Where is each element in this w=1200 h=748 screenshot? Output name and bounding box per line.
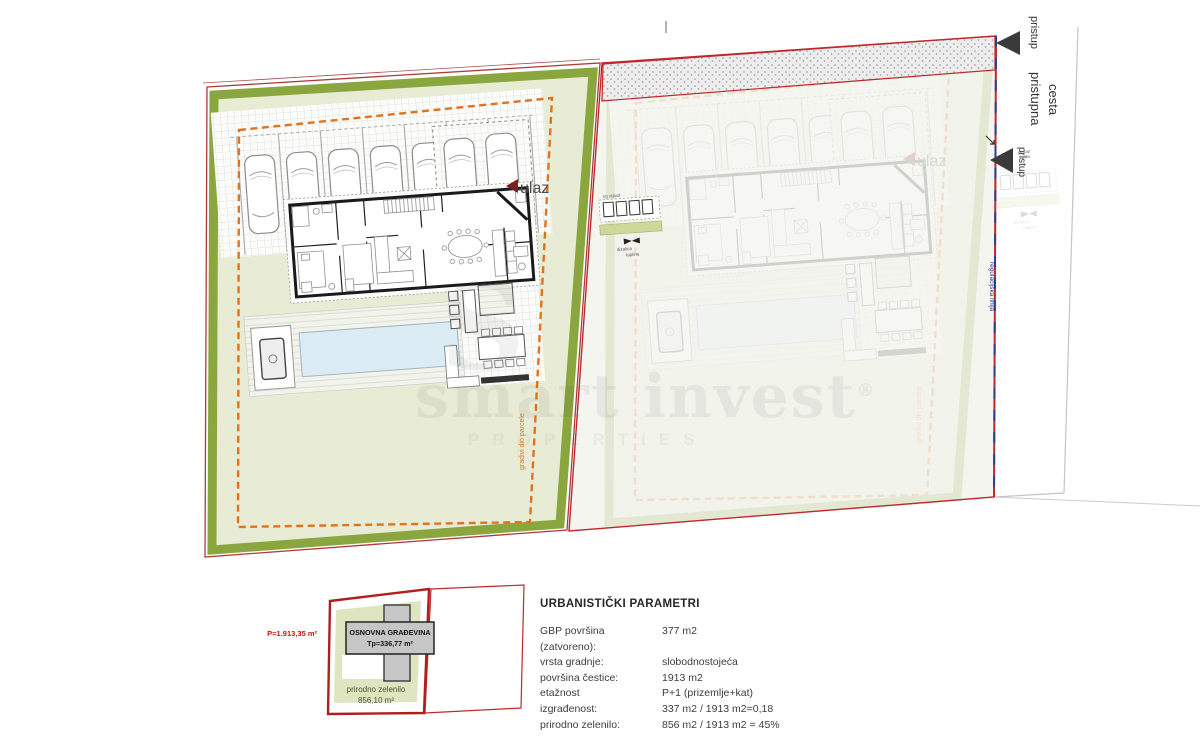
parameter-row: površina čestice: 1913 m2 [540, 671, 970, 687]
legend-building-area: Tp=336,77 m² [367, 639, 413, 648]
access-label-top: pristup [1028, 16, 1040, 49]
parameter-label: izgrađenost: [540, 702, 662, 718]
legend-building-title: OSNOVNA GRAĐEVINA [349, 628, 430, 637]
parameter-label: GBP površina (zatvoreno): [540, 624, 662, 655]
parameter-label: vrsta gradnje: [540, 655, 662, 671]
road-name-line2: cesta [1046, 84, 1061, 116]
legend-green-label1: prirodno zelenilo [347, 685, 406, 694]
parameter-value: 856 m2 / 1913 m2 = 45% [662, 718, 970, 734]
parameter-value: slobodnostojeća [662, 655, 970, 671]
legend-building-body [346, 622, 434, 654]
heatpump-label-2: topline [626, 251, 640, 257]
parameter-row: vrsta gradnje: slobodnostojeća [540, 655, 970, 671]
parameter-label: prirodno zelenilo: [540, 718, 662, 734]
parameter-row: prirodno zelenilo: 856 m2 / 1913 m2 = 45… [540, 718, 970, 734]
setback-label: gradivi dio parcele [519, 413, 526, 470]
parameter-label: etažnost [540, 686, 662, 702]
ulaz-label: ulaz [520, 180, 549, 197]
parameter-value: 337 m2 / 1913 m2=0,18 [662, 702, 970, 718]
parameter-value: 1913 m2 [662, 671, 970, 687]
parameter-row: GBP površina (zatvoreno): 377 m2 [540, 624, 970, 655]
pool-area [244, 301, 465, 397]
parameter-label: površina čestice: [540, 671, 662, 687]
legend-green-label2: 856,10 m² [358, 696, 394, 705]
legend-diagram: P=1.913,35 m² OSNOVNA GRAĐEVINA Tp=336,7… [267, 585, 524, 714]
legend-parcel-area-label: P=1.913,35 m² [267, 629, 317, 638]
parameter-row: izgrađenost: 337 m2 / 1913 m2=0,18 [540, 702, 970, 718]
parameter-value: P+1 (prizemlje+kat) [662, 686, 970, 702]
site-plan-page: regulacijska linija pristup pristupna ce… [0, 0, 1200, 748]
regulation-line-label: regulacijska linija [988, 262, 995, 312]
parameter-value: 377 m2 [662, 624, 970, 655]
right-parcel: regulacijska linija [569, 36, 1061, 531]
legend-neighbor-parcel [425, 585, 524, 713]
urban-parameters-block: URBANISTIČKI PARAMETRI GBP površina (zat… [540, 598, 970, 733]
parameter-row: etažnost P+1 (prizemlje+kat) [540, 686, 970, 702]
parameters-title: URBANISTIČKI PARAMETRI [540, 598, 970, 610]
road-name-line1: pristupna [1028, 72, 1043, 126]
